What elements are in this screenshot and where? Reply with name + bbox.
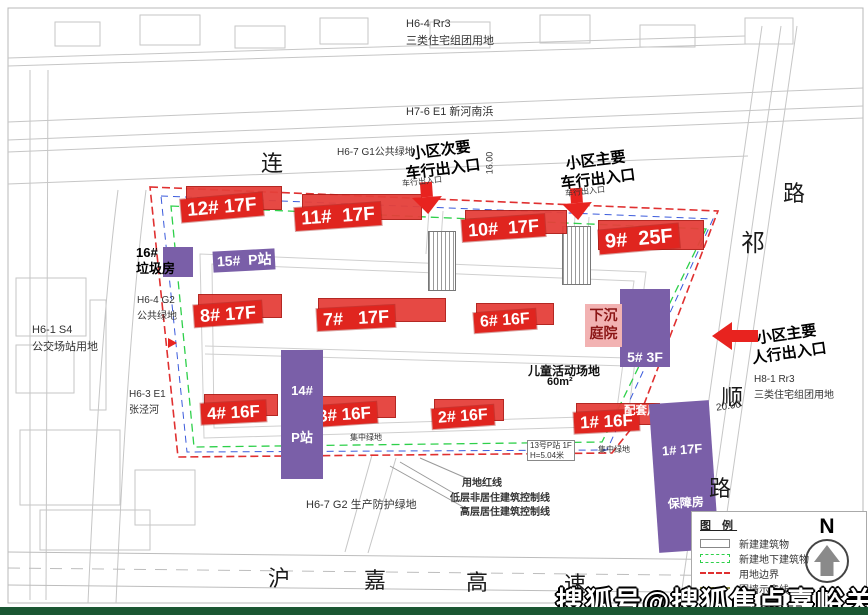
north-indicator: N	[796, 516, 858, 583]
dimension-16: 16.00	[484, 152, 494, 175]
north-label: N	[796, 516, 858, 537]
legend-item-label: 新建建筑物	[739, 536, 789, 551]
parcel-h6-4-line1: H6-4 Rr3	[406, 16, 494, 33]
minor-entrance-arrow-icon	[168, 338, 177, 348]
bottom-bar	[0, 607, 868, 615]
parcel-h6-7-g2: H6-7 G2 生产防护绿地	[306, 497, 417, 514]
road-label: 路	[709, 471, 731, 503]
note-lowrise-line: 低层非居住建筑控制线	[450, 489, 550, 504]
p-station-note-line1: 13号P站 1F	[530, 441, 572, 451]
legend-swatch-building	[700, 539, 730, 548]
parcel-h6-3-line1: H6-3 E1	[129, 387, 166, 403]
parcel-h6-1-line2: 公交场站用地	[32, 339, 98, 356]
parcel-h6-7-g1: H6-7 G1公共绿地	[337, 145, 415, 161]
ramp-hatch	[562, 226, 591, 285]
facility-label-14-line2: P站	[285, 430, 319, 446]
trash-house-line1: 16#	[136, 245, 175, 261]
legend-item-label: 用地边界	[739, 566, 779, 581]
legend-swatch-underground	[700, 554, 730, 563]
parcel-h6-4-line2: 三类住宅组团用地	[406, 33, 494, 50]
parcel-h8-1-line2: 三类住宅组团用地	[754, 388, 834, 404]
road-label: 高	[466, 565, 488, 597]
facility-block-5: 5# 3F 配套用房	[620, 289, 670, 367]
road-label: 嘉	[364, 563, 386, 595]
courtyard-line1: 下沉	[587, 307, 620, 325]
north-arrow-icon	[805, 539, 849, 583]
parcel-h7-6: H7-6 E1 新河南浜	[406, 104, 493, 121]
road-label: 顺	[721, 380, 743, 412]
parcel-h8-1-line1: H8-1 Rr3	[754, 372, 834, 388]
parcel-h6-4g2-line2: 公共绿地	[137, 309, 177, 325]
trash-house-line2: 垃圾房	[136, 261, 175, 277]
courtyard-line2: 庭院	[587, 325, 620, 343]
parcel-h6-3-line2: 张泾河	[129, 403, 166, 419]
building-label-8: 8# 17F	[193, 301, 262, 328]
road-label: 祁	[741, 223, 765, 258]
facility-label-1b-line1: 1# 17F	[656, 441, 709, 460]
note-highrise-line: 高层居住建筑控制线	[460, 503, 550, 518]
sunken-courtyard-label: 下沉 庭院	[585, 304, 622, 347]
p-station-note-line2: H=5.04米	[530, 451, 572, 461]
facility-label-15: 15# P站	[212, 248, 275, 272]
legend-swatch-boundary	[700, 572, 730, 574]
building-label-7: 7# 17F	[316, 305, 395, 331]
facility-label-14-line1: 14#	[285, 383, 319, 399]
building-label-4: 4# 16F	[200, 400, 266, 424]
road-label: 沪	[268, 561, 290, 593]
green-note: 集中绿地	[350, 432, 382, 443]
green-note: 集中绿地	[598, 444, 630, 455]
road-label: 连	[261, 146, 283, 178]
note-red-line: 用地红线	[462, 474, 502, 489]
ramp-hatch	[428, 231, 456, 291]
parcel-h6-4g2-line1: H6-4 G2	[137, 293, 177, 309]
parcel-h6-1-line1: H6-1 S4	[32, 322, 98, 339]
entrance-arrow-left-icon	[712, 322, 758, 350]
road-label: 路	[783, 176, 805, 208]
facility-label-1b-line2: 保障房	[659, 494, 712, 512]
facility-label-5-line1: 5# 3F	[624, 349, 666, 366]
playground-area: 60m²	[547, 376, 573, 388]
p-station-note: 13号P站 1F H=5.04米	[527, 440, 575, 461]
site-plan: 12# 17F 11# 17F 10# 17F 9# 25F 8# 17F 7#…	[0, 0, 868, 615]
